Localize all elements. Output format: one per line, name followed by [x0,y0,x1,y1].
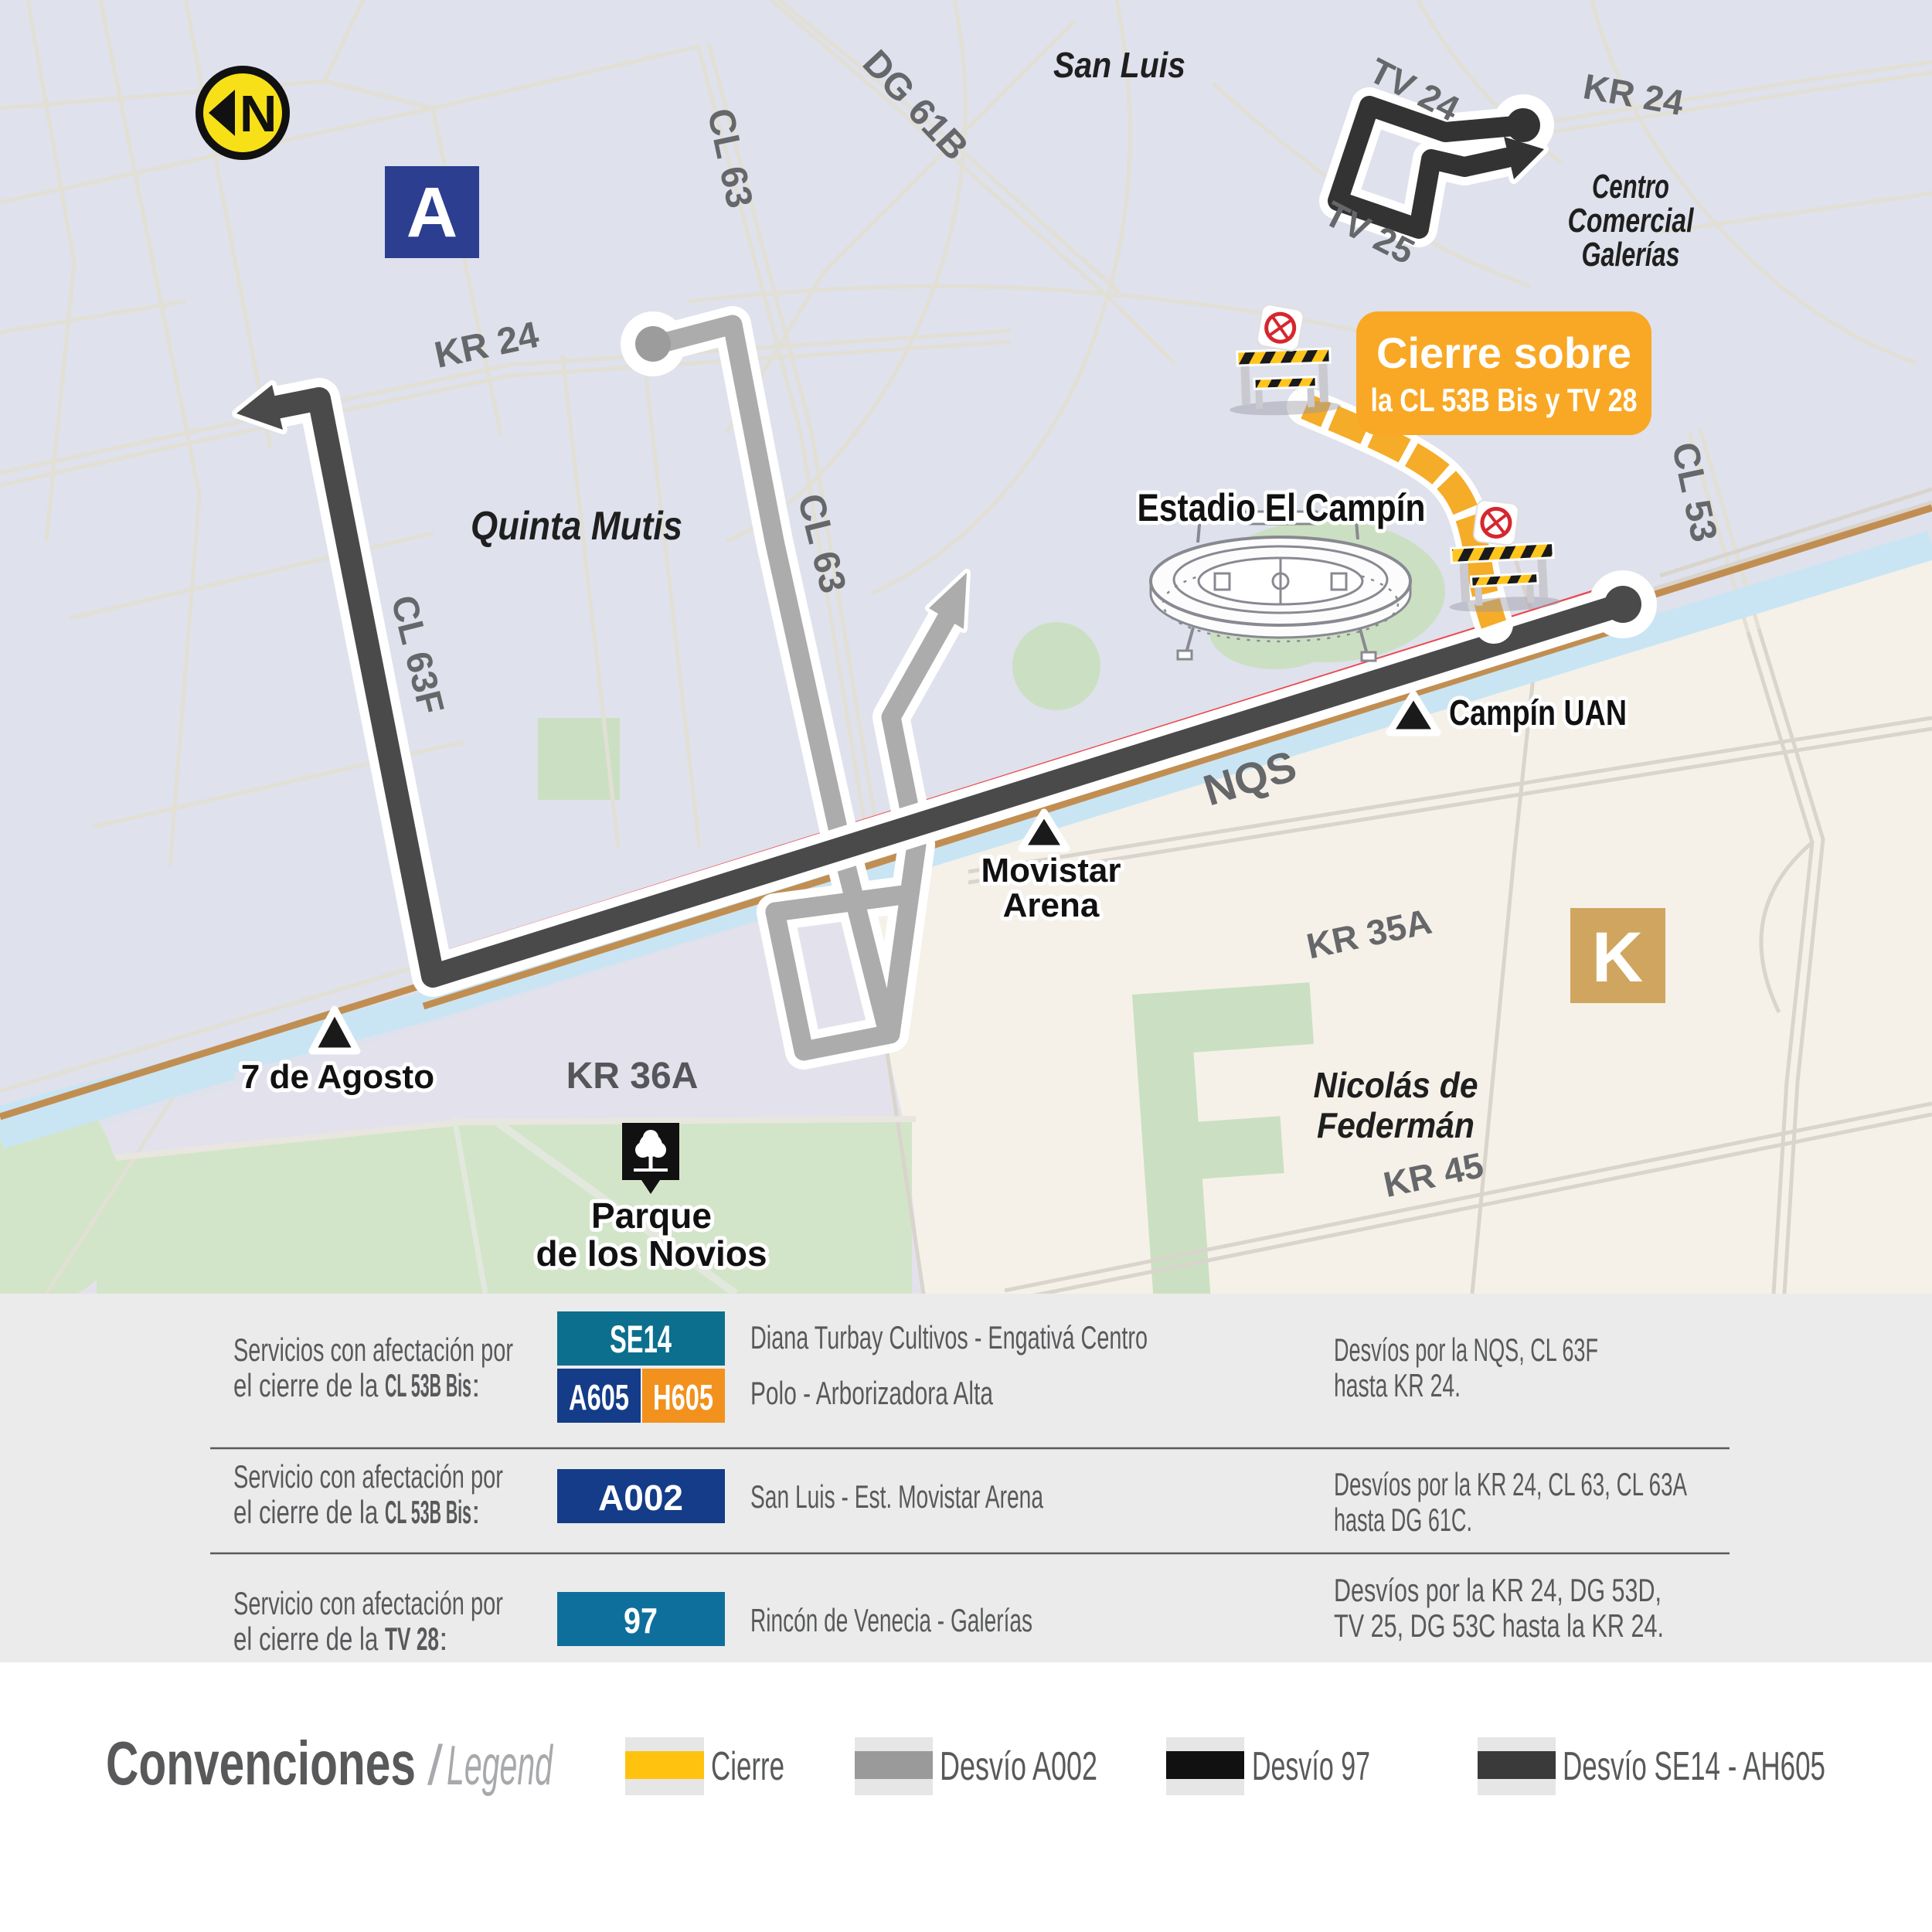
svg-text:hasta KR 24.: hasta KR 24. [1334,1367,1461,1403]
svg-text:H605: H605 [653,1377,713,1417]
svg-text:Desvío A002: Desvío A002 [940,1744,1097,1789]
svg-text:Desvío 97: Desvío 97 [1252,1744,1370,1789]
svg-text:Campín UAN: Campín UAN [1449,692,1627,733]
svg-text:Galerías: Galerías [1582,236,1680,274]
svg-text:Desvíos por la KR 24, CL 63, C: Desvíos por la KR 24, CL 63, CL 63A [1334,1466,1687,1502]
svg-text:Quinta Mutis: Quinta Mutis [471,504,682,549]
svg-text:el cierre de la TV 28:: el cierre de la TV 28: [233,1621,448,1657]
svg-text:97: 97 [624,1600,658,1641]
svg-text:Parque: Parque [591,1196,712,1236]
svg-text:Desvío SE14 - AH605: Desvío SE14 - AH605 [1563,1744,1825,1789]
svg-text:Servicio con afectación por: Servicio con afectación por [233,1458,503,1495]
svg-text:Nicolás de: Nicolás de [1314,1065,1478,1105]
svg-text:hasta DG 61C.: hasta DG 61C. [1334,1502,1472,1538]
svg-text:Desvíos por la KR 24, DG 53D,: Desvíos por la KR 24, DG 53D, [1334,1572,1662,1608]
svg-text:Comercial: Comercial [1568,202,1695,240]
svg-text:Diana Turbay Cultivos - Engati: Diana Turbay Cultivos - Engativá Centro [750,1319,1148,1355]
svg-text:Rincón de Venecia - Galerías: Rincón de Venecia - Galerías [750,1602,1032,1638]
svg-text:A002: A002 [598,1478,683,1518]
svg-text:Cierre sobre: Cierre sobre [1376,328,1631,377]
svg-text:SE14: SE14 [610,1318,672,1361]
svg-text:San Luis - Est. Movistar Arena: San Luis - Est. Movistar Arena [750,1478,1043,1515]
svg-text:Federmán: Federmán [1317,1105,1475,1145]
svg-text:Convenciones: Convenciones [106,1729,416,1798]
svg-text:K: K [1592,918,1643,997]
svg-text:Servicio con afectación por: Servicio con afectación por [233,1585,503,1621]
svg-text:N: N [240,85,277,143]
svg-text:Desvíos por la NQS, CL 63F: Desvíos por la NQS, CL 63F [1334,1332,1598,1368]
svg-text:Arena: Arena [1003,886,1100,924]
svg-text:7 de Agosto: 7 de Agosto [241,1058,434,1096]
svg-text:Servicios con afectación por: Servicios con afectación por [233,1332,513,1368]
svg-text:de los Novios: de los Novios [536,1233,767,1274]
svg-text:el cierre de la CL 53B Bis:: el cierre de la CL 53B Bis: [233,1494,481,1530]
svg-text:Cierre: Cierre [711,1744,784,1789]
svg-text:KR 36A: KR 36A [566,1056,699,1097]
svg-text:TV 25, DG 53C hasta la KR 24.: TV 25, DG 53C hasta la KR 24. [1334,1607,1664,1644]
svg-text:San Luis: San Luis [1053,45,1185,85]
svg-text:/: / [427,1735,443,1797]
svg-text:Movistar: Movistar [981,852,1121,889]
svg-text:A: A [406,173,457,252]
svg-text:Polo - Arborizadora Alta: Polo - Arborizadora Alta [750,1375,993,1411]
svg-text:Estadio El Campín: Estadio El Campín [1138,486,1426,529]
svg-text:A605: A605 [569,1377,629,1417]
svg-text:el cierre de la CL 53B Bis:: el cierre de la CL 53B Bis: [233,1367,481,1403]
svg-text:Centro: Centro [1592,168,1669,206]
svg-text:la CL 53B Bis y TV 28: la CL 53B Bis y TV 28 [1371,382,1638,418]
svg-text:Legend: Legend [447,1735,553,1797]
